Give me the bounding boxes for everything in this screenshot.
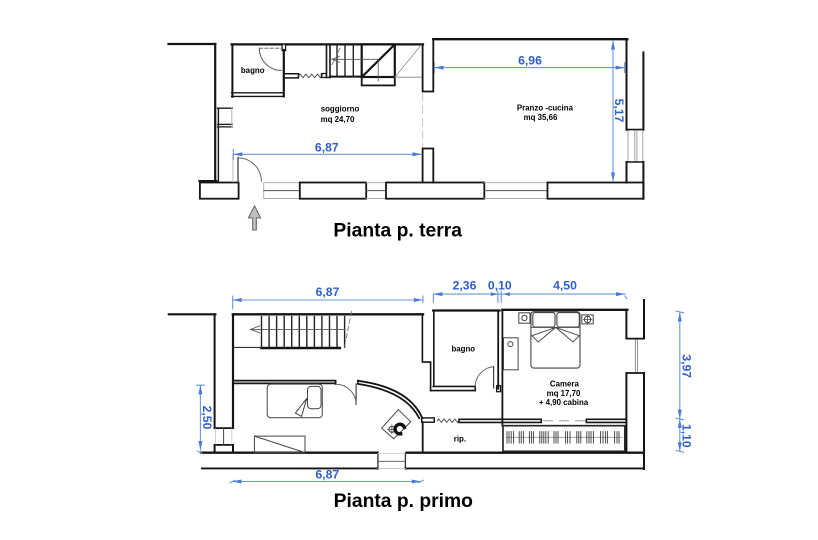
svg-text:Pianta p. primo: Pianta p. primo (334, 491, 473, 512)
svg-text:2,36: 2,36 (453, 279, 477, 293)
svg-text:6,87: 6,87 (315, 467, 339, 481)
svg-text:Camera: Camera (550, 380, 580, 389)
svg-text:soggiorno: soggiorno (321, 104, 360, 113)
svg-text:Pranzo -cucina: Pranzo -cucina (517, 103, 574, 112)
svg-text:6,87: 6,87 (316, 285, 340, 299)
svg-text:1,10: 1,10 (679, 424, 693, 448)
svg-text:+ 4,90 cabina: + 4,90 cabina (539, 398, 589, 407)
svg-text:mq 35,66: mq 35,66 (524, 113, 558, 122)
svg-text:bagno: bagno (241, 66, 265, 75)
svg-text:4,50: 4,50 (553, 279, 577, 293)
svg-text:bagno: bagno (451, 344, 475, 353)
svg-text:0,10: 0,10 (488, 279, 512, 293)
svg-text:6,96: 6,96 (518, 54, 542, 68)
svg-text:5,17: 5,17 (612, 99, 626, 123)
svg-text:rip.: rip. (454, 435, 466, 444)
svg-text:mq 24,70: mq 24,70 (321, 115, 355, 124)
svg-text:3,97: 3,97 (679, 354, 693, 378)
svg-text:6,87: 6,87 (315, 141, 339, 155)
svg-text:Pianta p. terra: Pianta p. terra (333, 221, 462, 242)
svg-text:mq 17,70: mq 17,70 (547, 389, 581, 398)
svg-text:2,50: 2,50 (200, 406, 214, 430)
